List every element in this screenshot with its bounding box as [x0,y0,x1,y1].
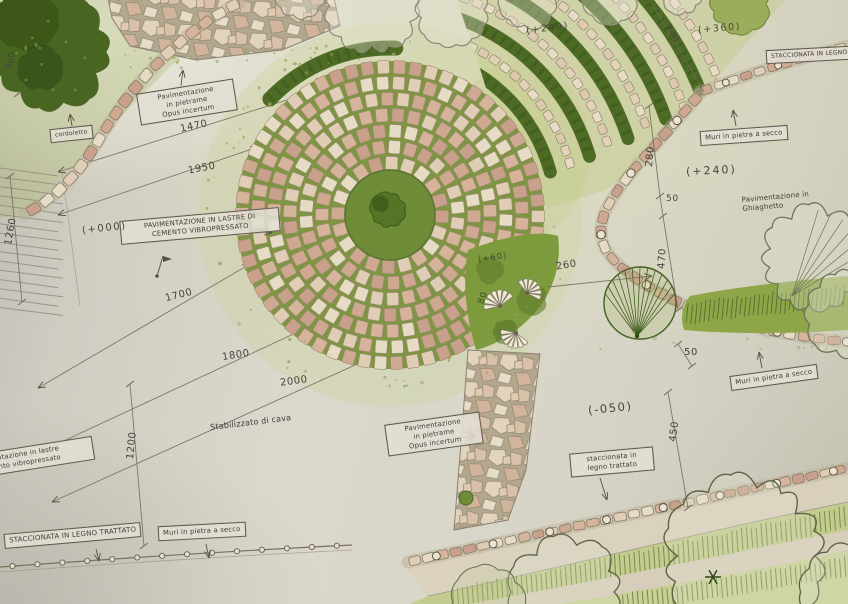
dim-50-upper: 50 [666,194,679,204]
elevation-plus240-right: (+240) [686,163,737,179]
wood-fence-bottom-left [0,543,352,572]
plan-drawing [0,0,848,604]
dim-50-mid: 50 [684,347,698,358]
dim-470: 470 [656,248,668,270]
landscape-plan-photo: Pavimentazione in pietrame Opus incertum… [0,0,848,604]
dim-280: 280 [644,146,657,168]
right-lawn-and-trees [604,203,848,359]
